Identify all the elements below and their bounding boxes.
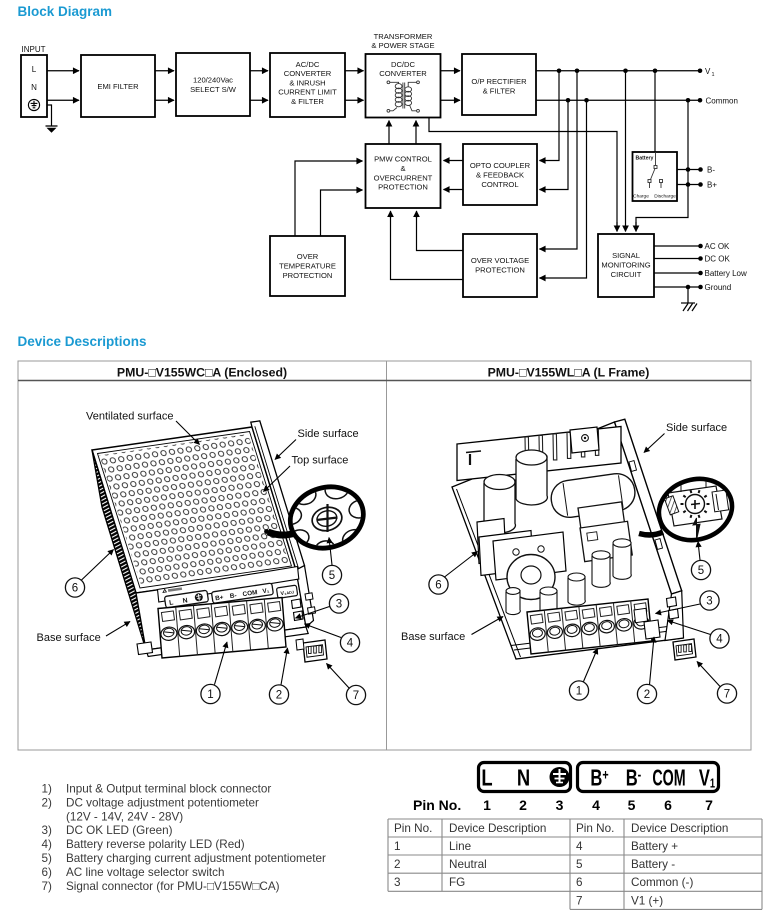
svg-text:Discharge: Discharge (654, 194, 676, 200)
svg-text:1: 1 (712, 72, 715, 78)
svg-text:EMI FILTER: EMI FILTER (97, 82, 139, 91)
svg-text:Pin No.: Pin No. (413, 797, 461, 813)
svg-text:Block Diagram: Block Diagram (18, 4, 113, 19)
svg-text:AC OK: AC OK (705, 242, 731, 251)
svg-text:1: 1 (576, 686, 582, 698)
svg-text:Charge: Charge (633, 194, 649, 200)
svg-text:7: 7 (353, 690, 359, 702)
svg-text:V: V (705, 67, 711, 76)
svg-text:L: L (481, 766, 492, 791)
svg-text:5: 5 (698, 565, 704, 577)
svg-text:B+: B+ (215, 594, 225, 602)
svg-text:6: 6 (72, 583, 78, 595)
svg-text:5: 5 (329, 570, 335, 582)
svg-text:N: N (517, 766, 530, 791)
svg-text:3: 3 (336, 599, 342, 611)
svg-text:Battery: Battery (636, 156, 654, 162)
svg-text:Battery Low: Battery Low (705, 269, 747, 278)
svg-text:4: 4 (716, 634, 723, 646)
svg-text:Ground: Ground (705, 283, 732, 292)
svg-text:Top surface: Top surface (292, 455, 349, 467)
svg-text:4: 4 (347, 638, 354, 650)
svg-text:PMU-□V155WC□A (Enclosed): PMU-□V155WC□A (Enclosed) (117, 366, 287, 380)
svg-text:B+: B+ (707, 181, 717, 190)
svg-text:Ventilated surface: Ventilated surface (86, 411, 173, 423)
svg-text:PMU-□V155WL□A (L Frame): PMU-□V155WL□A (L Frame) (488, 366, 650, 380)
svg-text:2: 2 (644, 689, 650, 701)
svg-text:Common: Common (706, 96, 738, 105)
svg-text:Side surface: Side surface (298, 428, 359, 440)
svg-text:Base surface: Base surface (37, 632, 101, 644)
svg-text:B-: B- (707, 166, 715, 175)
svg-text:L: L (32, 65, 37, 74)
svg-text:PMW CONTROL&OVERCURRENTPROTECT: PMW CONTROL&OVERCURRENTPROTECTION (374, 155, 433, 192)
svg-text:2: 2 (276, 690, 282, 702)
svg-text:TRANSFORMER& POWER STAGE: TRANSFORMER& POWER STAGE (371, 32, 434, 50)
svg-text:B-: B- (229, 592, 237, 600)
svg-text:OVER VOLTAGEPROTECTION: OVER VOLTAGEPROTECTION (471, 256, 529, 274)
svg-text:7: 7 (724, 689, 730, 701)
svg-text:Device Descriptions: Device Descriptions (18, 334, 147, 349)
svg-text:N: N (31, 83, 37, 92)
svg-text:INPUT: INPUT (22, 45, 46, 54)
svg-text:3: 3 (706, 596, 712, 608)
svg-text:DC OK: DC OK (705, 255, 731, 264)
svg-text:Base surface: Base surface (401, 631, 465, 643)
svg-text:COM: COM (652, 766, 685, 791)
svg-text:V₁: V₁ (262, 587, 270, 595)
svg-text:6: 6 (435, 580, 441, 592)
svg-text:1: 1 (207, 689, 213, 701)
svg-text:120/240VacSELECT S/W: 120/240VacSELECT S/W (190, 76, 237, 94)
svg-text:Side surface: Side surface (666, 422, 727, 434)
